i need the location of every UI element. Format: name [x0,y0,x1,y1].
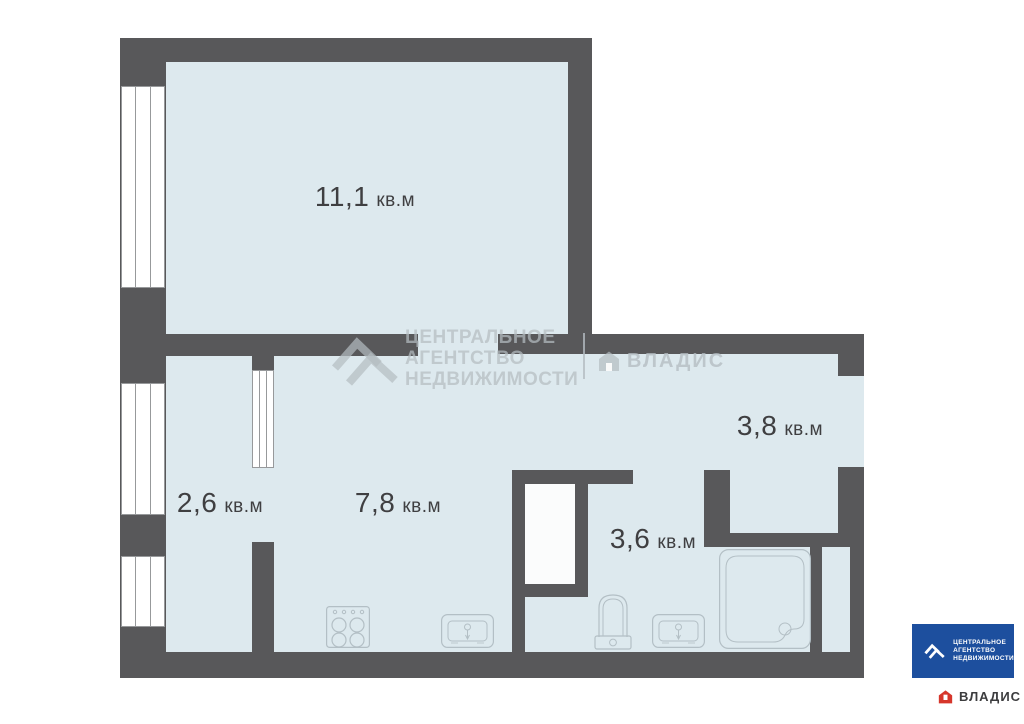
duct-shaft [525,484,575,584]
floor-plan-canvas: ЦЕНТРАЛЬНОЕ АГЕНТСТВО НЕДВИЖИМОСТИ ВЛАДИ… [0,0,1024,724]
agency-watermark-text: ЦЕНТРАЛЬНОЕ АГЕНТСТВО НЕДВИЖИМОСТИ [405,327,578,390]
watermark-line-2: АГЕНТСТВО [405,348,578,369]
vladis-logo-text: ВЛАДИС [959,689,1021,704]
house-icon [598,351,620,372]
toilet-icon [594,592,632,655]
wall-bathroom-top [512,470,633,484]
shower-tray-icon [719,549,811,654]
wall-living-right [568,38,592,341]
wall-shaft-right [575,484,588,597]
room-label-hall: 3,8кв.м [737,410,823,442]
window-balcony-upper-icon [121,383,165,515]
vladis-logo: ВЛАДИС [938,689,1021,704]
room-label-balcony: 2,6кв.м [177,487,263,519]
wall-shower-top [704,533,838,547]
wall-partition-lower [252,542,274,652]
bathroom-sink-icon [652,614,705,653]
kitchen-sink-icon [441,614,494,653]
room-label-living: 11,1кв.м [315,181,415,213]
wall-entry-notch [838,354,864,376]
vladis-watermark-text: ВЛАДИС [627,350,725,373]
room-label-bathroom: 3,6кв.м [610,523,696,555]
wall-bathroom-divider [704,470,730,533]
watermark-divider [583,333,585,379]
vladis-watermark: ВЛАДИС [598,350,725,373]
watermark-line-1: ЦЕНТРАЛЬНОЕ [405,327,578,348]
window-partition-icon [252,370,274,468]
window-living-icon [121,86,165,288]
agency-watermark-logo-icon [327,330,403,394]
wall-shaft-bottom [525,584,588,597]
watermark-line-3: НЕДВИЖИМОСТИ [405,369,578,390]
window-balcony-lower-icon [121,556,165,627]
wall-top [120,38,592,62]
agency-logo-badge: ЦЕНТРАЛЬНОЕ АГЕНТСТВО НЕДВИЖИМОСТИ [912,624,1014,678]
wall-right-lower [850,535,864,652]
wall-partition-stub [252,354,274,370]
stove-icon [326,606,370,653]
agency-logo-text: ЦЕНТРАЛЬНОЕ АГЕНТСТВО НЕДВИЖИМОСТИ [953,639,1014,663]
agency-logo-icon [923,640,946,663]
wall-bottom [120,652,864,678]
wall-niche-left [810,547,822,652]
vladis-house-icon [938,690,953,704]
room-label-kitchen: 7,8кв.м [355,487,441,519]
wall-shaft-left [512,470,525,652]
